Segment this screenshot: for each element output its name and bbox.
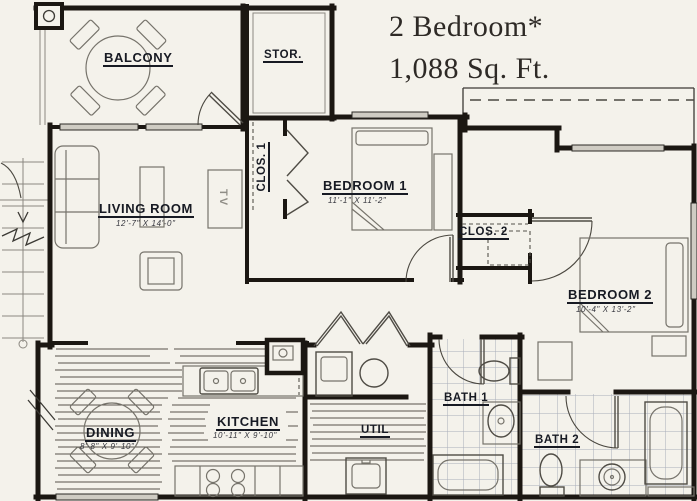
bed2 [580,238,688,332]
coffee-table [140,167,164,227]
kitchen-dims: 10'-11" X 9'-10" [213,431,277,440]
storage-room-outline [253,13,325,113]
dresser2 [538,342,572,380]
kitchen-label: KITCHEN [216,414,280,431]
storage-label: STOR. [263,49,303,63]
bath2-label: BATH 2 [534,434,580,448]
dresser1 [434,154,452,230]
util-label: UTIL [360,424,390,438]
bedroom2-dims: 10'-4" X 13'-2" [576,305,636,314]
bedroom1-dims: 11'-1" X 11'-2" [328,196,386,205]
closet1-label: CLOS. 1 [256,132,270,202]
bedroom1-label: BEDROOM 1 [322,178,408,195]
floor-plan-page: 2 Bedroom* 1,088 Sq. Ft. BALCONY STOR. L… [0,0,697,501]
closet2-label: CLOS. 2 [458,226,509,240]
balcony-label: BALCONY [103,50,173,67]
dining-dims: 8'-8" X 9'-10" [80,442,135,451]
stove-burner [207,470,220,483]
double-sink [200,368,258,394]
nightstand2 [652,336,686,356]
living-room-label: LIVING ROOM [98,201,194,218]
bedroom2-label: BEDROOM 2 [567,287,653,304]
plan-title-line1: 2 Bedroom* [389,6,550,48]
plan-title-line2: 1,088 Sq. Ft. [389,48,550,90]
living-room-dims: 12'-7" X 14'-0" [116,219,176,228]
plan-title: 2 Bedroom* 1,088 Sq. Ft. [389,6,550,90]
balcony-railing [36,4,62,125]
bath1-label: BATH 1 [443,392,489,406]
living-room-furniture [55,146,242,290]
balcony-table-chairs [69,19,166,115]
tv-label: TV [217,189,229,207]
dining-label: DINING [85,425,136,442]
roof-overhang-lines [463,88,694,146]
sofa [55,146,99,248]
util-fixtures [316,352,388,494]
staircase [0,158,50,348]
water-heater [360,359,388,387]
